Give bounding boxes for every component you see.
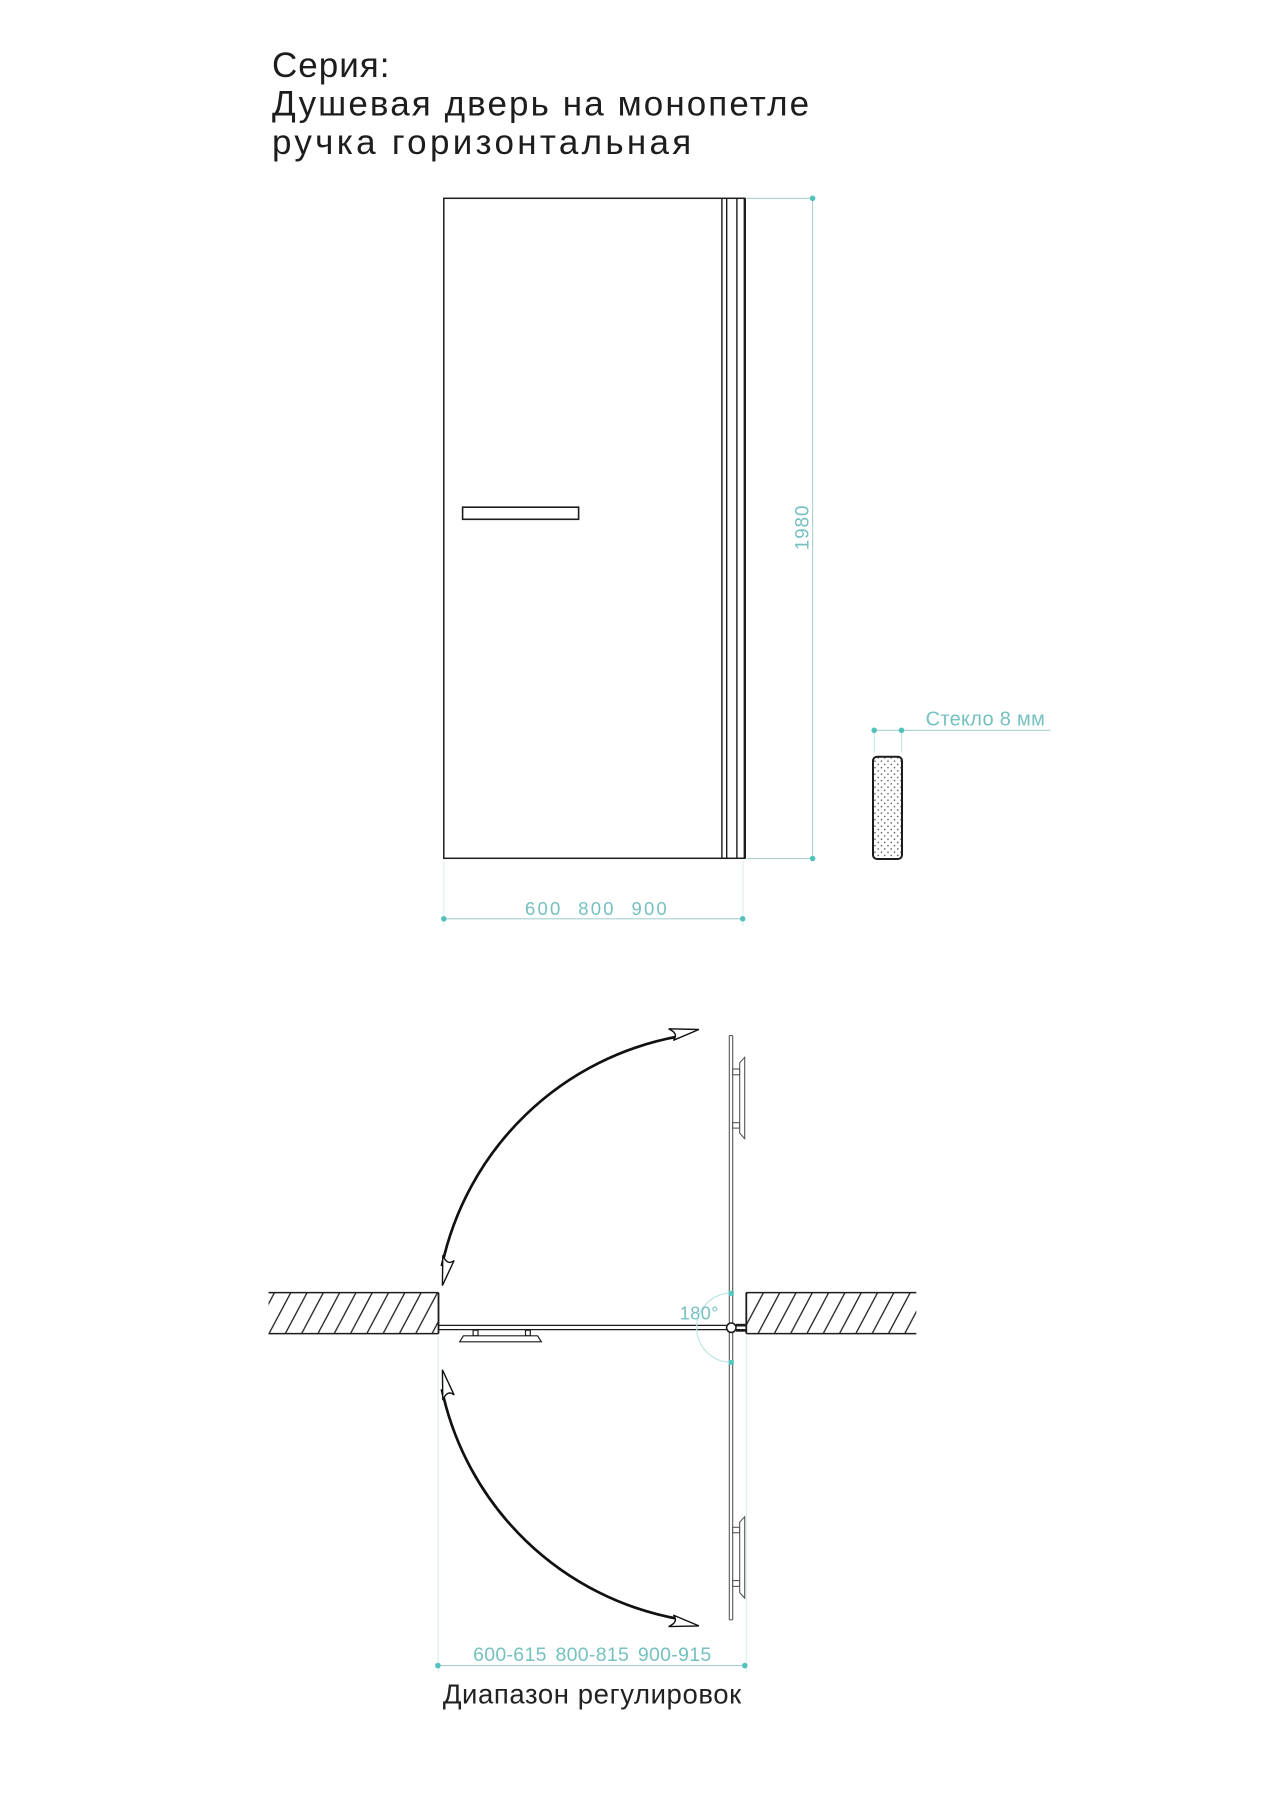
svg-text:ручка горизонтальная: ручка горизонтальная: [272, 123, 695, 162]
svg-text:180°: 180°: [680, 1304, 719, 1324]
svg-text:600 800 900: 600 800 900: [525, 898, 669, 919]
svg-text:Душевая дверь на монопетле: Душевая дверь на монопетле: [272, 85, 811, 124]
svg-text:Серия:: Серия:: [272, 46, 390, 85]
svg-text:1980: 1980: [793, 505, 814, 550]
svg-text:Стекло 8 мм: Стекло 8 мм: [926, 708, 1046, 730]
svg-text:Диапазон регулировок: Диапазон регулировок: [443, 1679, 742, 1710]
svg-text:600-615 800-815 900-915: 600-615 800-815 900-915: [473, 1644, 711, 1666]
